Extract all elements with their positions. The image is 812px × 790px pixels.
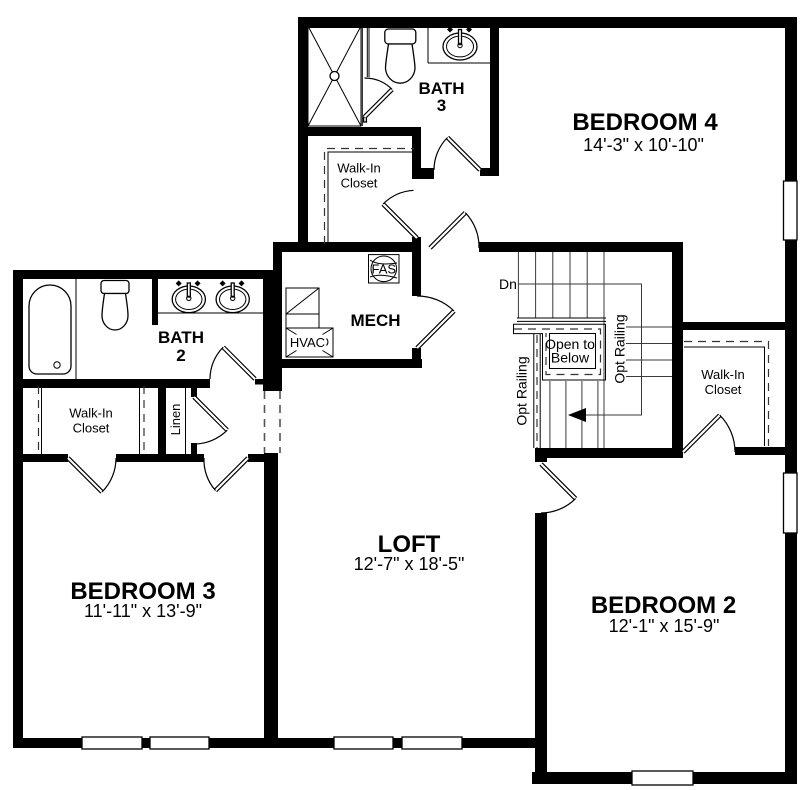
svg-text:Closet: Closet (73, 421, 110, 436)
svg-text:Below: Below (551, 350, 590, 366)
svg-text:Opt Railing: Opt Railing (514, 356, 530, 425)
svg-text:2: 2 (176, 346, 185, 365)
svg-text:Dn: Dn (499, 276, 517, 292)
svg-text:BEDROOM 4: BEDROOM 4 (572, 109, 718, 136)
svg-text:BEDROOM 2: BEDROOM 2 (591, 592, 736, 619)
svg-text:11'-11" x 13'-9": 11'-11" x 13'-9" (84, 601, 202, 621)
svg-text:Opt Railing: Opt Railing (612, 314, 628, 383)
svg-text:HVAC: HVAC (290, 335, 325, 350)
svg-text:14'-3" x 10'-10": 14'-3" x 10'-10" (583, 135, 704, 155)
svg-text:Walk-In: Walk-In (69, 406, 113, 421)
svg-text:MECH: MECH (350, 311, 400, 330)
svg-text:12'-7" x 18'-5": 12'-7" x 18'-5" (354, 554, 465, 574)
svg-text:3: 3 (437, 96, 446, 115)
svg-text:Closet: Closet (341, 176, 378, 191)
svg-text:BATH: BATH (158, 328, 204, 347)
svg-text:Walk-In: Walk-In (701, 367, 745, 382)
svg-text:Closet: Closet (705, 382, 742, 397)
svg-text:FAS: FAS (372, 262, 397, 277)
svg-text:Walk-In: Walk-In (337, 161, 381, 176)
svg-text:12'-1" x 15'-9": 12'-1" x 15'-9" (609, 616, 720, 636)
svg-text:Linen: Linen (168, 404, 183, 436)
